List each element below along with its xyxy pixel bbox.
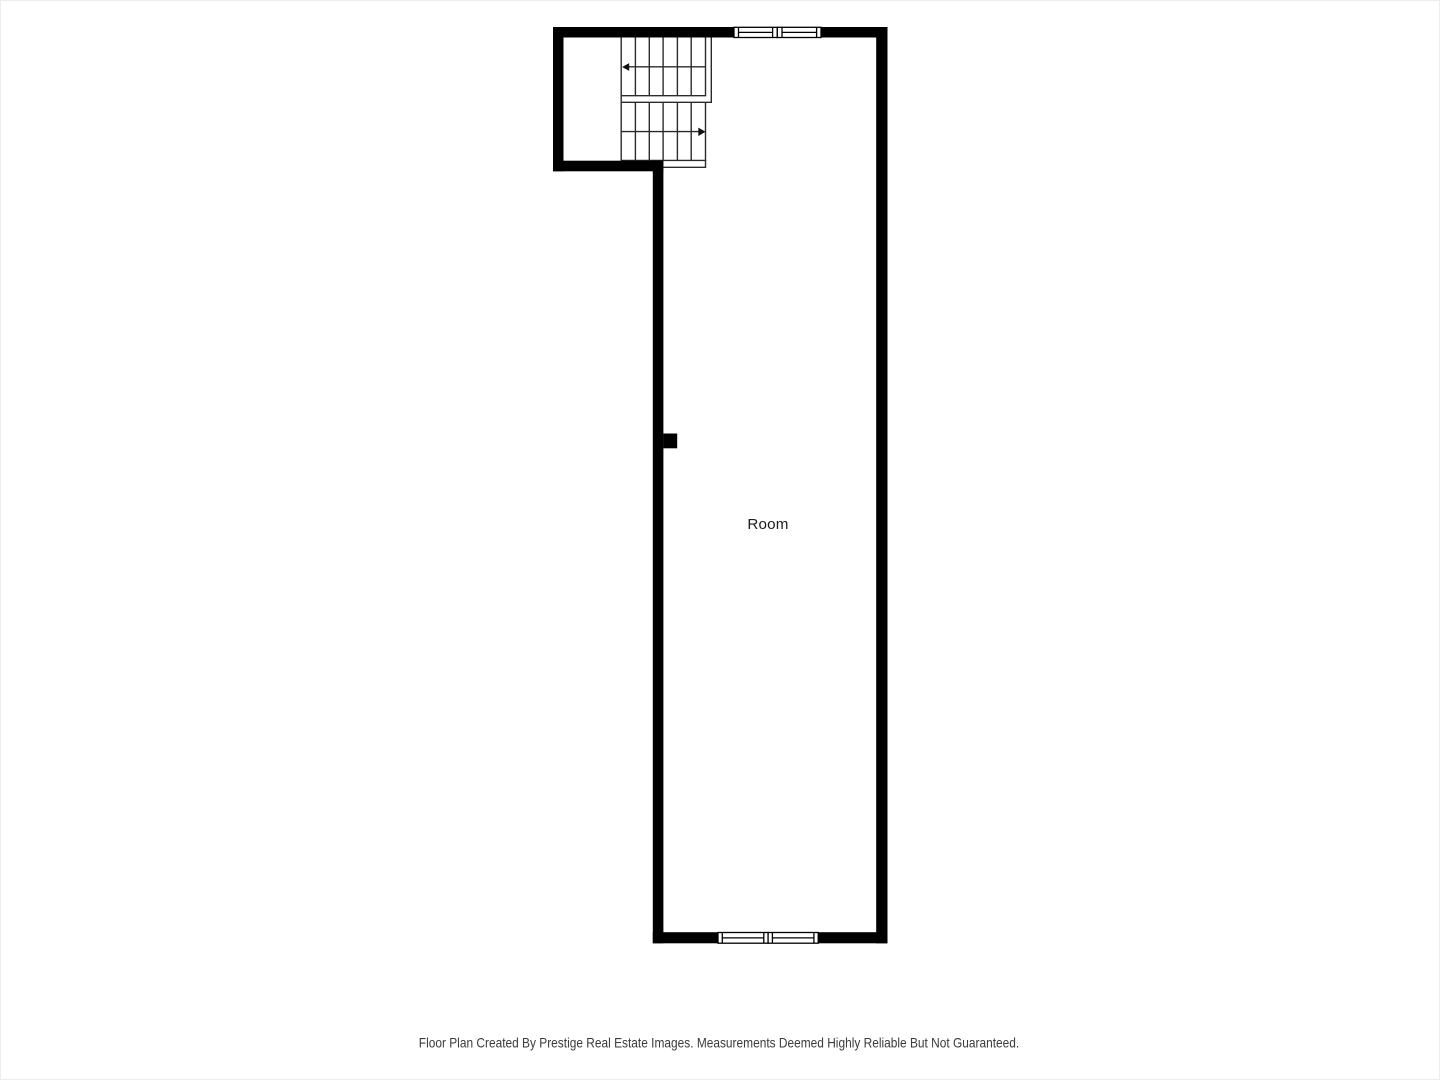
svg-text:Floor Plan Created By Prestige: Floor Plan Created By Prestige Real Esta… xyxy=(419,1034,1019,1050)
svg-text:Room: Room xyxy=(747,516,788,533)
